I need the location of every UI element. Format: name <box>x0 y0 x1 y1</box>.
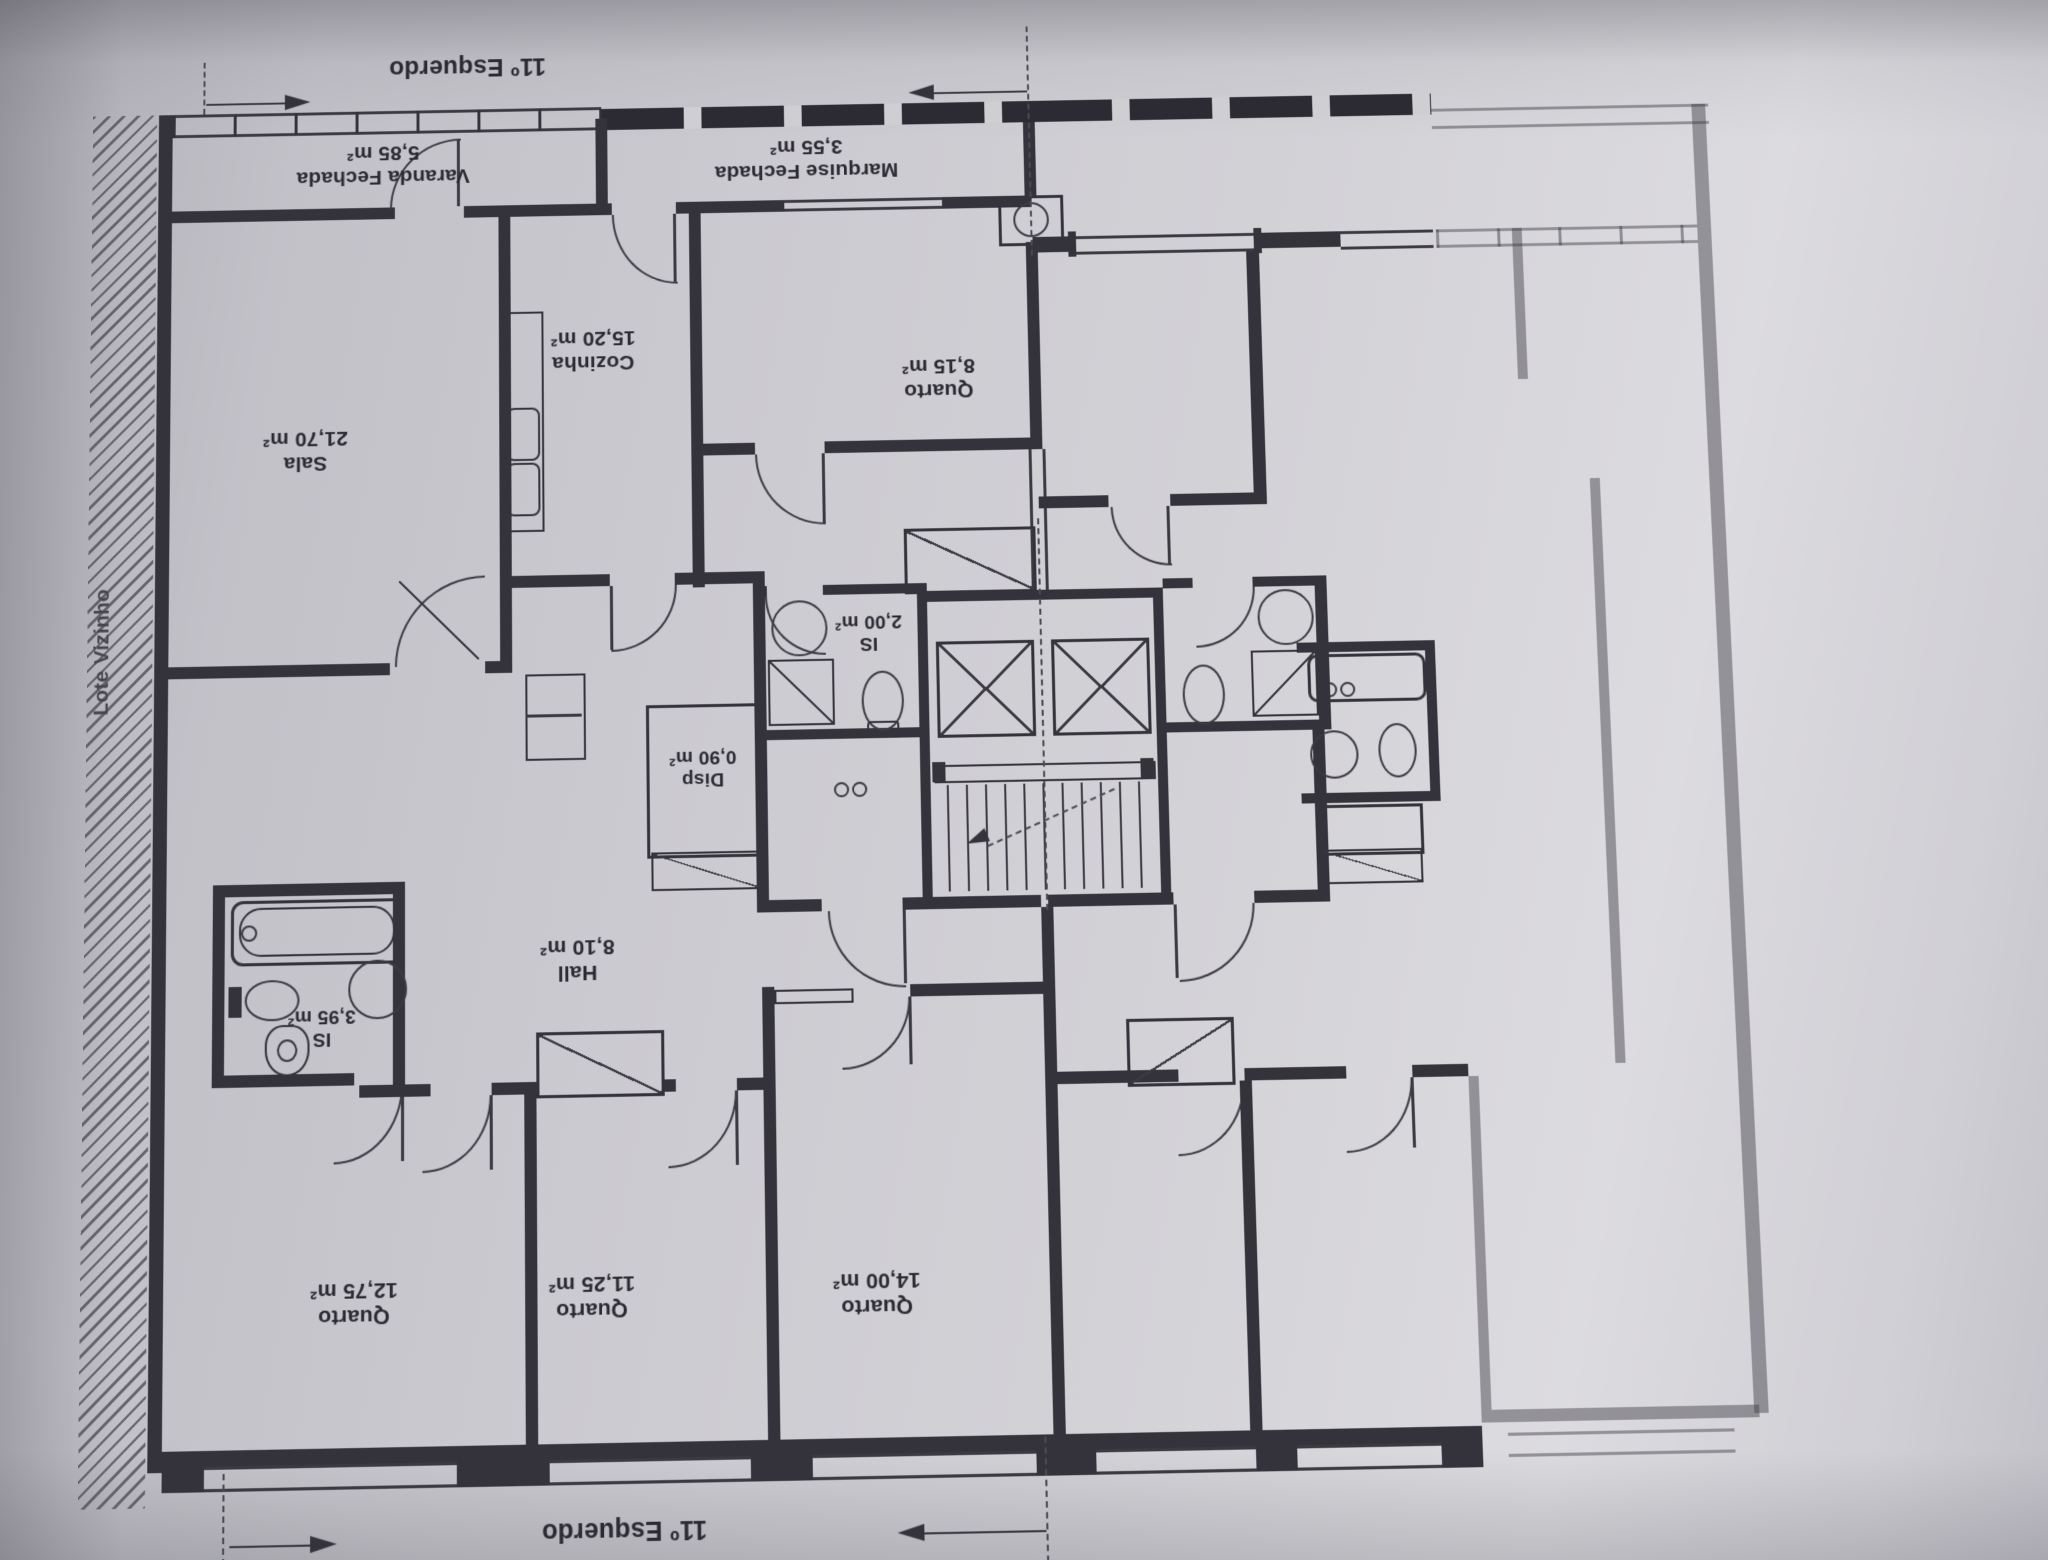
extent-arrow-shaft <box>934 90 1027 94</box>
wall <box>691 456 704 588</box>
wall-faint <box>1481 1405 1759 1423</box>
window-line <box>204 1484 457 1492</box>
chimney-line <box>1042 449 1048 590</box>
room-label-quarto-2: Quarto11,25 m² <box>489 1268 694 1324</box>
elevator-shaft <box>1051 638 1152 736</box>
door-arc <box>755 453 826 525</box>
handrail-cap <box>932 762 945 782</box>
room-cozinha <box>510 213 692 576</box>
window-line <box>1298 1465 1442 1471</box>
wall <box>1261 231 1340 248</box>
handrail-cap <box>1140 758 1154 778</box>
site-boundary-label: Lote Vizinho <box>89 567 137 738</box>
wall-faint <box>1512 228 1528 379</box>
wall <box>1170 492 1254 505</box>
wall-faint <box>1468 1076 1491 1410</box>
window-pier <box>162 1451 205 1493</box>
wall <box>485 661 512 674</box>
wall <box>910 982 1043 997</box>
building: Lote Vizinho <box>146 86 1803 1560</box>
unit-label-top: 11º Esquerdo <box>350 50 585 83</box>
door-arc <box>841 996 911 1069</box>
extent-arrow-left <box>897 1524 924 1542</box>
room-quarto-3 <box>776 1084 1054 1439</box>
window-pier <box>1441 1426 1484 1468</box>
duct-shaft <box>904 526 1037 594</box>
wall <box>595 119 608 216</box>
door-arc <box>828 910 906 989</box>
wall-faint <box>1432 121 1709 129</box>
room-label-hall: Hall8,10 m² <box>476 931 679 986</box>
wall <box>1039 495 1109 508</box>
window-line-faint <box>1509 1449 1736 1457</box>
scanned-floor-plan-photo: Lote Vizinho <box>0 0 2048 1560</box>
wall <box>500 574 610 588</box>
door-arc <box>1344 1077 1415 1153</box>
wall <box>1244 1066 1346 1080</box>
toilet <box>1378 723 1418 778</box>
room-label-is-servico: IS2,00 m² <box>803 608 934 655</box>
door-arc <box>1195 587 1257 648</box>
window-line <box>1097 1468 1257 1474</box>
extent-dash-line <box>203 63 205 115</box>
wall <box>1166 719 1331 732</box>
closet <box>1126 1017 1236 1087</box>
window-line <box>1074 233 1259 239</box>
wall <box>1246 251 1267 504</box>
unit-label-bottom: 11º Esquerdo <box>500 1511 748 1547</box>
door-arc <box>611 585 678 652</box>
window-pier <box>457 1444 550 1487</box>
extent-arrow-shaft <box>206 102 285 105</box>
storage-shelf <box>1321 848 1423 884</box>
room-label-varanda: Varanda Fechada5,85 m² <box>265 138 501 190</box>
window-cap <box>1068 231 1077 256</box>
window-line <box>550 1478 751 1485</box>
wall-faint <box>1431 104 1708 112</box>
room-quarto-1 <box>162 1095 526 1452</box>
elevator-shaft <box>936 640 1036 738</box>
wall <box>1162 578 1192 589</box>
door-arc <box>1178 903 1257 982</box>
toilet <box>1182 664 1226 725</box>
window-mullions-faint <box>1436 225 1698 248</box>
room-label-quarto-3: Quarto14,00 m² <box>774 1264 980 1320</box>
extent-arrow-right <box>310 1535 337 1553</box>
wall-faint <box>1691 104 1768 1413</box>
wall <box>1240 1080 1263 1430</box>
window-line <box>813 1473 1037 1481</box>
wall <box>675 571 765 585</box>
wall <box>1296 640 1435 653</box>
core-wall <box>1153 587 1172 892</box>
wall <box>691 443 755 456</box>
room-hall <box>512 668 759 1082</box>
washbasin <box>1309 730 1359 779</box>
extent-arrow-right <box>285 94 311 110</box>
wall <box>1425 640 1441 801</box>
extent-arrow-shaft <box>924 1530 1046 1535</box>
room-label-quarto-1: Quarto12,75 m² <box>251 1275 456 1331</box>
room-label-disp: Disp0,90 m² <box>637 743 768 791</box>
room-label-sala: Sala21,70 m² <box>206 424 405 477</box>
marquise-window-band <box>1029 93 1431 122</box>
room-label-is-principal: IS3,95 m² <box>251 1002 393 1051</box>
wall <box>757 899 822 912</box>
site-boundary-hatch <box>78 115 157 1509</box>
window-line-faint <box>1508 1428 1735 1436</box>
wall <box>1301 791 1440 804</box>
room-label-marquise: Marquise Fechada3,55 m² <box>688 132 925 184</box>
extent-dash-line <box>222 1474 225 1560</box>
room-label-quarto-pequeno: Quarto8,15 m² <box>839 351 1038 403</box>
window-line <box>1341 245 1434 250</box>
wall-faint <box>1590 478 1626 1063</box>
washbasin <box>1257 589 1315 646</box>
wall <box>1048 892 1174 907</box>
wall <box>1412 1064 1468 1077</box>
wall <box>902 895 1041 910</box>
doorbell-dot <box>834 782 849 797</box>
window-pier <box>751 1439 813 1482</box>
bathtub <box>1307 652 1427 702</box>
window-pier <box>1255 1429 1298 1471</box>
wall <box>492 1082 537 1095</box>
wall <box>662 1079 676 1092</box>
room-quarto-pequeno <box>701 207 1031 444</box>
door-arc <box>1111 506 1172 567</box>
room-label-cozinha: Cozinha15,20 m² <box>494 323 693 375</box>
floor-plan: Lote Vizinho <box>77 16 1879 1560</box>
room-quarto-2 <box>536 1090 768 1445</box>
extent-arrow-left <box>908 85 934 101</box>
extent-arrow-shaft <box>229 1545 310 1549</box>
window-line <box>1074 248 1259 254</box>
window-line <box>1340 230 1433 235</box>
door-arc <box>1177 1081 1247 1157</box>
doorbell-dot <box>852 782 867 797</box>
